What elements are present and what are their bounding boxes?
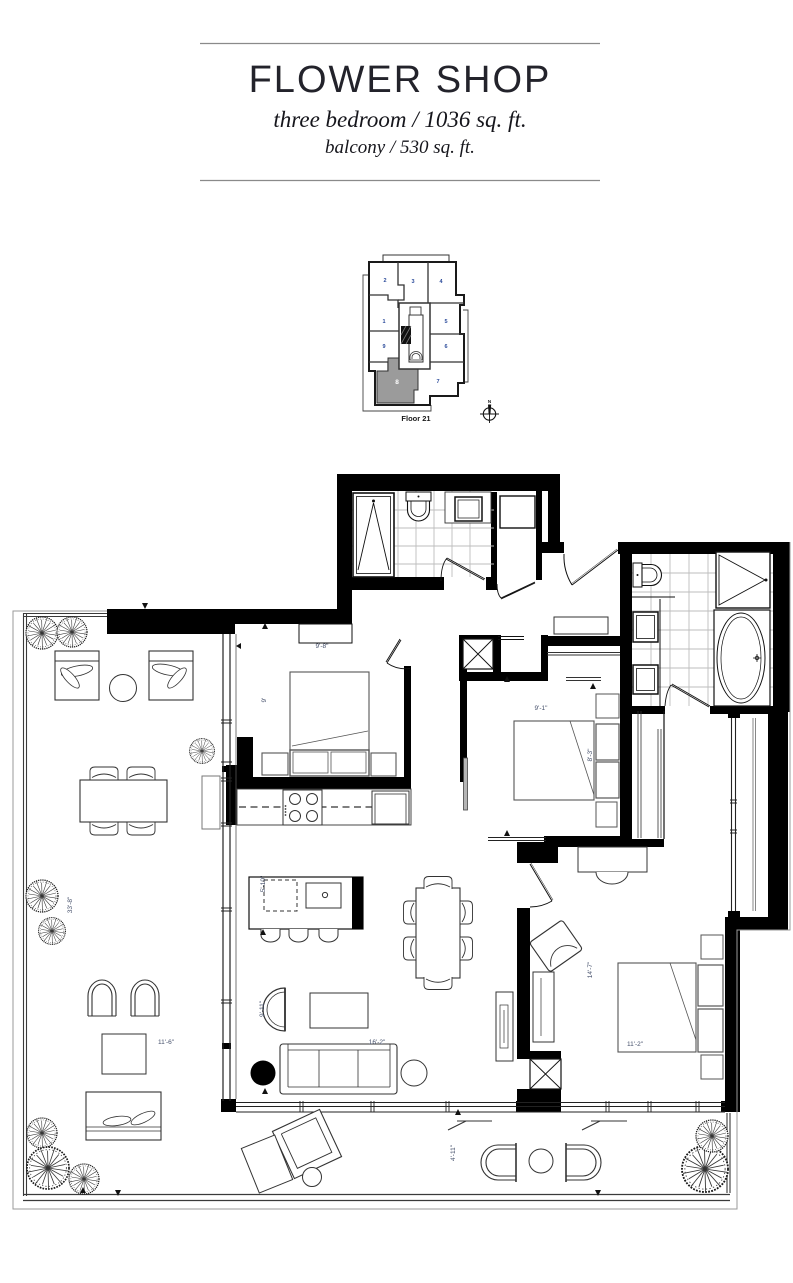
svg-text:9': 9' [261,698,268,703]
svg-text:8'-3": 8'-3" [587,748,594,762]
svg-text:N: N [488,399,491,404]
svg-text:5: 5 [444,319,447,325]
svg-text:FLOWER SHOP: FLOWER SHOP [249,59,552,101]
svg-text:balcony / 530 sq. ft.: balcony / 530 sq. ft. [325,137,475,158]
svg-text:9: 9 [382,344,385,350]
svg-text:4'-11": 4'-11" [450,1144,457,1161]
svg-text:5'-10": 5'-10" [260,875,267,892]
svg-text:Floor 21: Floor 21 [401,414,430,423]
svg-text:7: 7 [436,379,439,385]
svg-text:11'-2": 11'-2" [627,1041,644,1048]
svg-text:three bedroom / 1036 sq. ft.: three bedroom / 1036 sq. ft. [273,107,526,132]
svg-text:8: 8 [395,379,399,386]
svg-text:16'-2": 16'-2" [369,1039,386,1046]
svg-text:3: 3 [411,279,414,285]
svg-text:9'-11": 9'-11" [259,1000,266,1017]
svg-text:1: 1 [382,319,385,325]
svg-text:14'-7": 14'-7" [587,961,594,978]
svg-text:9'-1": 9'-1" [535,705,549,712]
svg-text:11'-6": 11'-6" [158,1039,175,1046]
svg-text:33'-8": 33'-8" [67,896,74,913]
svg-text:6: 6 [444,344,447,350]
svg-text:2: 2 [383,278,386,284]
svg-text:9'-8": 9'-8" [316,643,330,650]
